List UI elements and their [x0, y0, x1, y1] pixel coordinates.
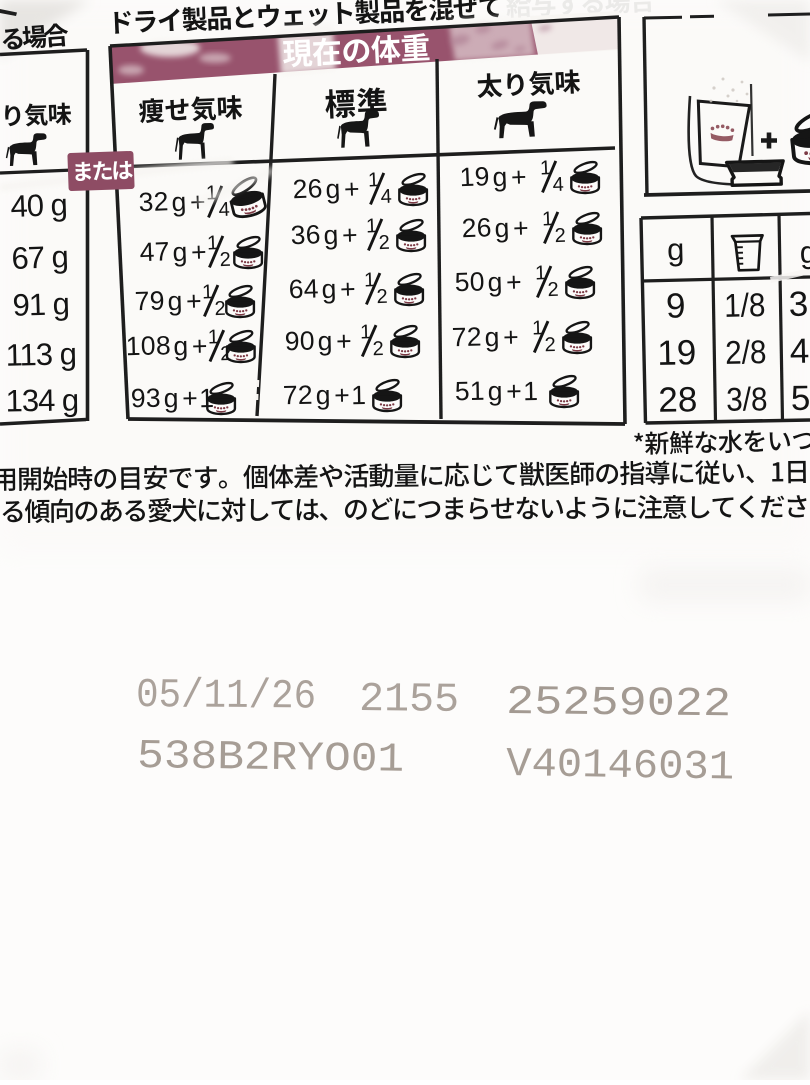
svg-text:+: +	[503, 322, 519, 352]
svg-text:g: g	[323, 220, 339, 250]
svg-text:91 g: 91 g	[12, 286, 69, 323]
svg-text:134 g: 134 g	[5, 382, 78, 418]
svg-text:108: 108	[125, 330, 171, 361]
svg-text:2: 2	[554, 225, 566, 247]
svg-text:67 g: 67 g	[11, 239, 69, 276]
svg-text:1: 1	[351, 380, 366, 410]
svg-text:1: 1	[199, 383, 214, 413]
svg-text:90: 90	[284, 326, 315, 357]
svg-text:+: +	[342, 220, 359, 251]
svg-text:4: 4	[218, 199, 230, 221]
svg-text:g: g	[321, 274, 337, 304]
svg-text:5: 5	[791, 379, 810, 418]
svg-text:9: 9	[666, 286, 686, 325]
svg-text:+: +	[513, 213, 530, 244]
svg-text:72: 72	[283, 380, 314, 411]
svg-text:V40146031: V40146031	[506, 742, 735, 792]
svg-text:2/8: 2/8	[725, 334, 767, 372]
svg-text:26: 26	[292, 173, 323, 204]
svg-text:2: 2	[372, 338, 384, 360]
svg-text:1: 1	[523, 376, 538, 406]
svg-text:g: g	[494, 213, 510, 243]
svg-text:g: g	[325, 174, 341, 205]
svg-text:4: 4	[552, 174, 564, 196]
svg-text:g: g	[667, 232, 685, 267]
svg-text:g: g	[487, 267, 503, 297]
svg-text:g: g	[167, 286, 183, 316]
svg-text:19: 19	[459, 161, 490, 192]
svg-text:g: g	[172, 237, 188, 267]
svg-text:2: 2	[378, 232, 390, 254]
svg-text:2: 2	[376, 286, 388, 308]
svg-text:3/8: 3/8	[726, 381, 768, 418]
svg-text:+: +	[186, 286, 202, 316]
svg-text:g: g	[484, 322, 499, 352]
svg-text:2: 2	[219, 249, 231, 271]
svg-text:g: g	[317, 326, 332, 356]
svg-text:2: 2	[220, 343, 232, 365]
svg-text:+: +	[510, 162, 527, 193]
svg-text:28: 28	[658, 380, 697, 420]
svg-text:g: g	[487, 376, 502, 406]
svg-text:4: 4	[380, 186, 392, 208]
svg-text:25259022: 25259022	[506, 680, 731, 728]
svg-text:g: g	[799, 235, 810, 270]
svg-text:2: 2	[544, 334, 556, 356]
svg-text:538B2RYO01: 538B2RYO01	[137, 734, 405, 784]
svg-text:3: 3	[788, 285, 808, 324]
svg-text:+: +	[334, 380, 350, 410]
svg-text:2: 2	[214, 298, 226, 320]
svg-text:+: +	[340, 274, 356, 304]
svg-text:47: 47	[139, 236, 170, 267]
svg-text:32: 32	[138, 186, 169, 217]
svg-text:72: 72	[451, 322, 482, 353]
svg-text:36: 36	[290, 219, 321, 250]
svg-text:1/8: 1/8	[724, 287, 766, 325]
svg-text:2: 2	[547, 279, 559, 301]
svg-text:50: 50	[454, 266, 485, 297]
svg-text:+: +	[191, 237, 208, 268]
svg-text:+: +	[506, 267, 522, 297]
svg-text:113 g: 113 g	[5, 336, 76, 372]
svg-text:05/11/26: 05/11/26	[136, 673, 316, 721]
svg-text:g: g	[315, 380, 330, 410]
svg-text:64: 64	[288, 273, 319, 304]
svg-text:g: g	[163, 383, 178, 413]
svg-text:+: +	[336, 326, 352, 356]
svg-text:2155: 2155	[359, 677, 459, 724]
svg-text:g: g	[173, 331, 188, 361]
svg-text:g: g	[171, 187, 187, 218]
svg-text:93: 93	[131, 383, 162, 414]
svg-text:+: +	[506, 376, 522, 406]
svg-text:51: 51	[455, 376, 486, 407]
svg-text:4: 4	[789, 332, 809, 371]
svg-text:79: 79	[134, 285, 165, 316]
svg-text:+: +	[192, 331, 208, 361]
svg-text:40 g: 40 g	[10, 187, 68, 224]
svg-text:g: g	[492, 162, 508, 193]
svg-text:+: +	[182, 383, 198, 413]
svg-text:+: +	[343, 174, 360, 205]
svg-text:26: 26	[461, 212, 492, 243]
svg-text:19: 19	[657, 333, 697, 373]
